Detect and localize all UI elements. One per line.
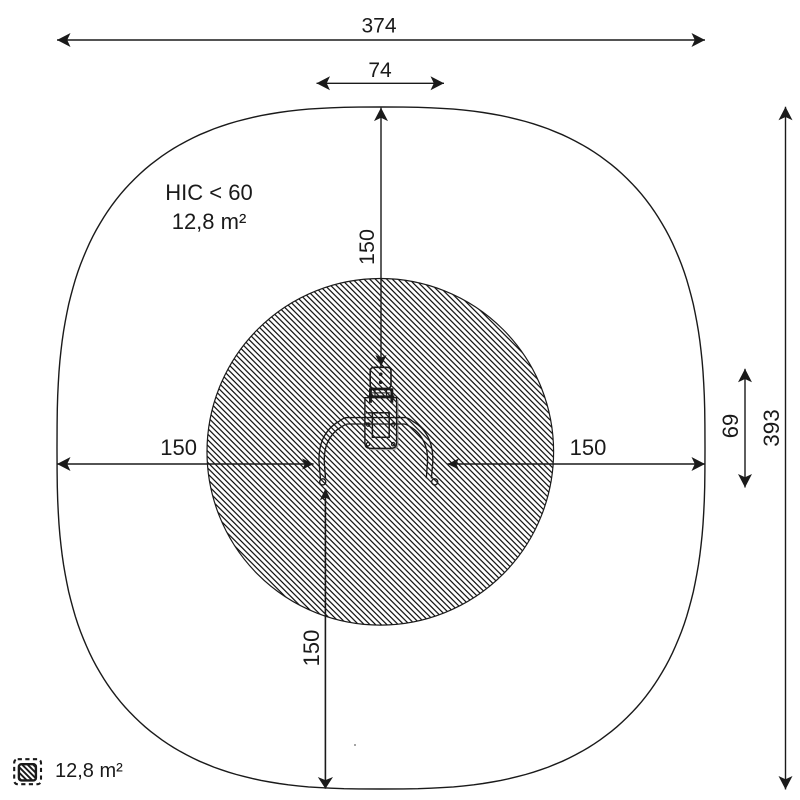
svg-text:74: 74 bbox=[368, 59, 392, 82]
svg-text:69: 69 bbox=[718, 414, 743, 438]
svg-text:HIC < 60: HIC < 60 bbox=[165, 180, 252, 205]
svg-text:150: 150 bbox=[355, 229, 379, 265]
svg-text:393: 393 bbox=[759, 409, 784, 447]
svg-text:12,8 m²: 12,8 m² bbox=[55, 760, 123, 782]
svg-text:374: 374 bbox=[361, 15, 396, 38]
svg-text:150: 150 bbox=[160, 435, 197, 460]
svg-text:150: 150 bbox=[570, 435, 607, 460]
svg-text:12,8 m²: 12,8 m² bbox=[172, 209, 247, 234]
svg-text:150: 150 bbox=[299, 630, 324, 667]
